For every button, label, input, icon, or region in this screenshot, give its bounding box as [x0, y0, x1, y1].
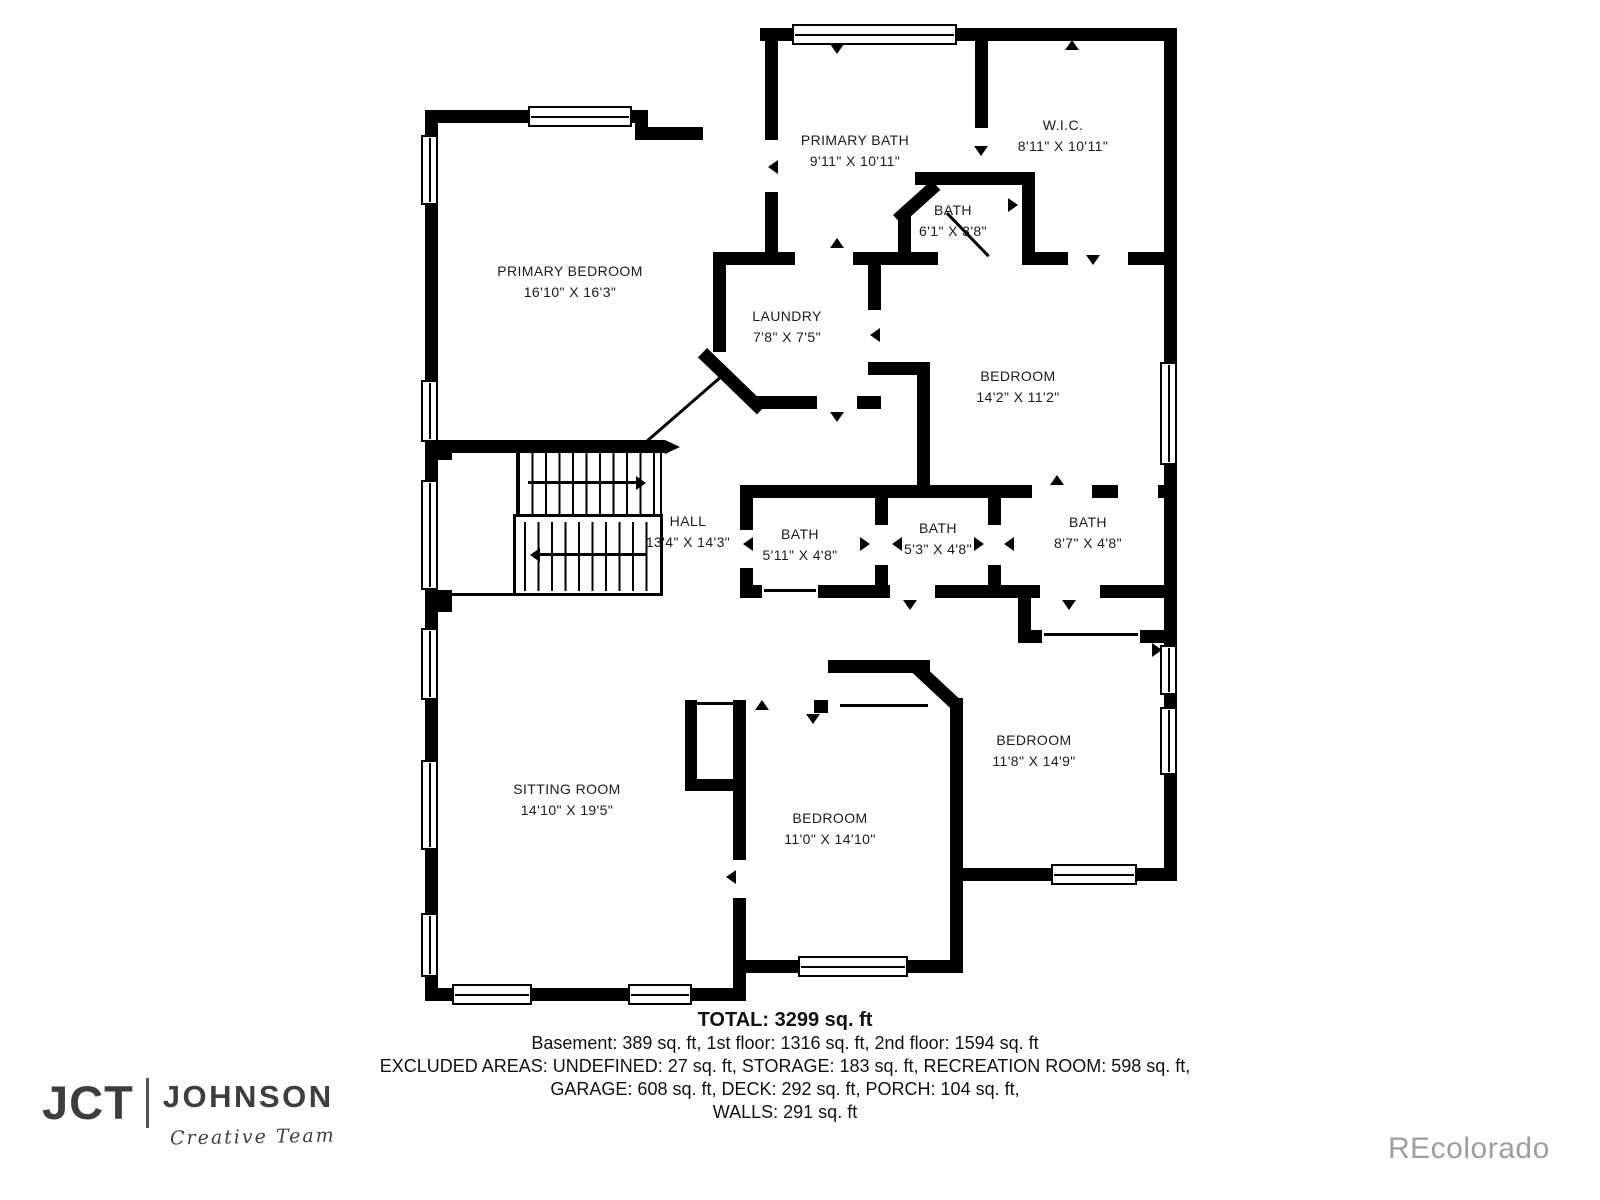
wall-segment: [950, 868, 1051, 881]
wall-segment: [685, 700, 697, 791]
room-dims: 16'10" X 16'3": [497, 282, 643, 303]
wall-segment: [1022, 172, 1035, 265]
door-arrow: [726, 870, 736, 884]
door-arrow: [1050, 475, 1064, 485]
wall-segment: [692, 988, 746, 1001]
room-name: W.I.C.: [1018, 115, 1108, 136]
window-symbol: [1160, 707, 1177, 775]
door-leaf-line: [1044, 633, 1138, 636]
wall-segment: [875, 485, 888, 525]
room-name: PRIMARY BATH: [801, 130, 909, 151]
wall-segment: [425, 460, 438, 480]
johnson-creative-team-logo: JCT JOHNSON Creative Team: [42, 1078, 336, 1148]
wall-segment: [425, 612, 438, 628]
window-symbol: [628, 984, 692, 1005]
room-name: BEDROOM: [784, 808, 875, 829]
room-dims: 5'3" X 4'8": [904, 539, 972, 560]
room-dims: 8'11" X 10'11": [1018, 136, 1108, 157]
wall-segment: [908, 960, 963, 973]
logo-row: JCT JOHNSON: [42, 1078, 336, 1128]
floorplan-page: { "rooms": { "primary_bath": {"name": "P…: [0, 0, 1600, 1200]
door-arrow: [1008, 198, 1018, 212]
wall-segment: [1140, 630, 1177, 643]
door-arrow: [1065, 40, 1079, 50]
wall-segment: [1164, 28, 1177, 362]
wall-segment: [1164, 775, 1177, 881]
wall-segment: [713, 252, 726, 352]
room-label-bath-small: BATH 6'1" X 3'8": [919, 200, 987, 242]
door-arrow: [1086, 255, 1100, 265]
wall-segment: [1158, 485, 1177, 498]
window-symbol: [1160, 362, 1177, 465]
window-symbol: [1160, 645, 1177, 695]
room-name: LAUNDRY: [752, 306, 821, 327]
room-dims: 9'11" X 10'11": [801, 151, 909, 172]
window-symbol: [452, 984, 532, 1005]
room-label-bedroom-ne: BEDROOM 14'2" X 11'2": [976, 366, 1059, 408]
room-label-primary-bath: PRIMARY BATH 9'11" X 10'11": [801, 130, 909, 172]
room-label-hall: HALL 13'4" X 14'3": [646, 511, 730, 553]
stairs-direction-line: [528, 481, 638, 484]
door-arrow: [768, 160, 778, 174]
wall-segment: [1137, 868, 1177, 881]
wall-segment: [857, 396, 881, 409]
room-dims: 13'4" X 14'3": [646, 532, 730, 553]
window-symbol: [1051, 864, 1137, 885]
wall-segment: [814, 700, 828, 713]
room-dims: 14'10" X 19'5": [513, 800, 620, 821]
wall-segment: [988, 485, 1001, 525]
wall-segment: [818, 585, 890, 598]
window-symbol: [421, 380, 438, 442]
door-arrow: [1152, 643, 1162, 657]
wall-segment: [733, 791, 746, 860]
wall-segment: [755, 396, 817, 409]
door-arrow: [974, 146, 988, 156]
room-dims: 7'8" X 7'5": [752, 327, 821, 348]
room-label-laundry: LAUNDRY 7'8" X 7'5": [752, 306, 821, 348]
wall-segment: [1092, 485, 1118, 498]
wall-segment: [868, 252, 881, 310]
door-arrow: [830, 44, 844, 54]
window-symbol: [421, 135, 438, 205]
excluded-areas-text: EXCLUDED AREAS: UNDEFINED: 27 sq. ft, ST…: [360, 1055, 1210, 1078]
wall-segment: [1018, 630, 1042, 643]
room-dims: 6'1" X 3'8": [919, 221, 987, 242]
room-label-sitting-room: SITTING ROOM 14'10" X 19'5": [513, 779, 620, 821]
room-label-bedroom-e: BEDROOM 11'8" X 14'9": [992, 730, 1075, 772]
wall-segment: [1100, 585, 1177, 598]
door-arrow: [755, 700, 769, 710]
recolorado-watermark: REcolorado: [1388, 1132, 1550, 1166]
door-arrow: [974, 537, 984, 551]
window-symbol: [421, 760, 438, 850]
window-symbol: [421, 628, 438, 700]
wall-segment: [532, 988, 628, 1001]
window-symbol: [792, 24, 957, 45]
walls-area-text: WALLS: 291 sq. ft: [360, 1101, 1210, 1124]
room-name: BATH: [1054, 512, 1122, 533]
wall-segment: [950, 698, 963, 973]
door-arrow: [892, 537, 902, 551]
wall-segment: [733, 898, 746, 988]
door-arrow: [830, 238, 844, 248]
garage-deck-porch-text: GARAGE: 608 sq. ft, DECK: 292 sq. ft, PO…: [360, 1078, 1210, 1101]
wall-segment: [853, 252, 938, 265]
wall-segment: [425, 110, 528, 123]
door-leaf-line: [688, 702, 733, 705]
room-dims: 11'8" X 14'9": [992, 751, 1075, 772]
wall-segment: [425, 110, 438, 135]
room-dims: 11'0" X 14'10": [784, 829, 875, 850]
door-arrow: [860, 537, 870, 551]
stairs-down-arrow: [530, 548, 540, 562]
wall-segment: [740, 585, 762, 598]
room-name: SITTING ROOM: [513, 779, 620, 800]
room-name: BEDROOM: [976, 366, 1059, 387]
logo-tagline-text: Creative Team: [170, 1125, 336, 1150]
area-summary: TOTAL: 3299 sq. ft Basement: 389 sq. ft,…: [360, 1008, 1210, 1124]
window-symbol: [421, 480, 438, 590]
wall-segment: [975, 28, 988, 128]
wall-segment: [1164, 695, 1177, 707]
room-label-bath-1: BATH 5'11" X 4'8": [762, 524, 837, 566]
wall-segment: [765, 192, 778, 252]
wall-segment: [425, 850, 438, 913]
room-name: BATH: [762, 524, 837, 545]
door-arrow: [1062, 600, 1076, 610]
room-name: PRIMARY BEDROOM: [497, 261, 643, 282]
door-arrow: [903, 600, 917, 610]
window-symbol: [421, 913, 438, 977]
window-symbol: [798, 956, 908, 977]
wall-segment: [425, 988, 452, 1001]
wall-segment: [1035, 252, 1068, 265]
door-arrow: [806, 714, 820, 724]
door-arrow: [830, 412, 844, 422]
room-dims: 8'7" X 4'8": [1054, 533, 1122, 554]
wall-segment: [917, 375, 930, 485]
wall-segment: [425, 205, 438, 380]
logo-divider: [146, 1078, 149, 1128]
door-arrow: [870, 328, 880, 342]
wall-end-point: [665, 440, 680, 454]
stairs-up-arrow: [636, 476, 646, 490]
wall-segment: [740, 485, 753, 530]
door-leaf-line: [764, 589, 816, 592]
room-dims: 14'2" X 11'2": [976, 387, 1059, 408]
room-label-bedroom-s: BEDROOM 11'0" X 14'10": [784, 808, 875, 850]
jct-logo-mark: JCT: [42, 1080, 134, 1126]
door-leaf-line: [840, 704, 928, 707]
room-name: BATH: [904, 518, 972, 539]
room-dims: 5'11" X 4'8": [762, 545, 837, 566]
wall-segment: [733, 960, 798, 973]
room-name: BEDROOM: [992, 730, 1075, 751]
wall-segment: [648, 127, 703, 140]
wall-segment: [765, 28, 778, 140]
stair-boundary-line: [437, 593, 517, 596]
room-label-wic: W.I.C. 8'11" X 10'11": [1018, 115, 1108, 157]
total-area-text: TOTAL: 3299 sq. ft: [360, 1008, 1210, 1032]
wall-segment: [733, 700, 746, 791]
stairs-direction-line: [540, 553, 646, 556]
room-name: HALL: [646, 511, 730, 532]
room-label-primary-bedroom: PRIMARY BEDROOM 16'10" X 16'3": [497, 261, 643, 303]
door-leaf-line: [646, 373, 725, 442]
floor-areas-text: Basement: 389 sq. ft, 1st floor: 1316 sq…: [360, 1032, 1210, 1055]
logo-name-text: JOHNSON: [163, 1081, 334, 1112]
wall-segment: [1128, 252, 1177, 265]
window-symbol: [528, 106, 632, 127]
door-arrow: [1004, 537, 1014, 551]
stairs-treads: [524, 522, 652, 591]
room-label-bath-2: BATH 5'3" X 4'8": [904, 518, 972, 560]
room-label-bath-3: BATH 8'7" X 4'8": [1054, 512, 1122, 554]
wall-segment: [635, 110, 648, 140]
wall-segment: [868, 362, 930, 375]
room-name: BATH: [919, 200, 987, 221]
wall-segment: [425, 700, 438, 760]
door-arrow: [743, 537, 753, 551]
